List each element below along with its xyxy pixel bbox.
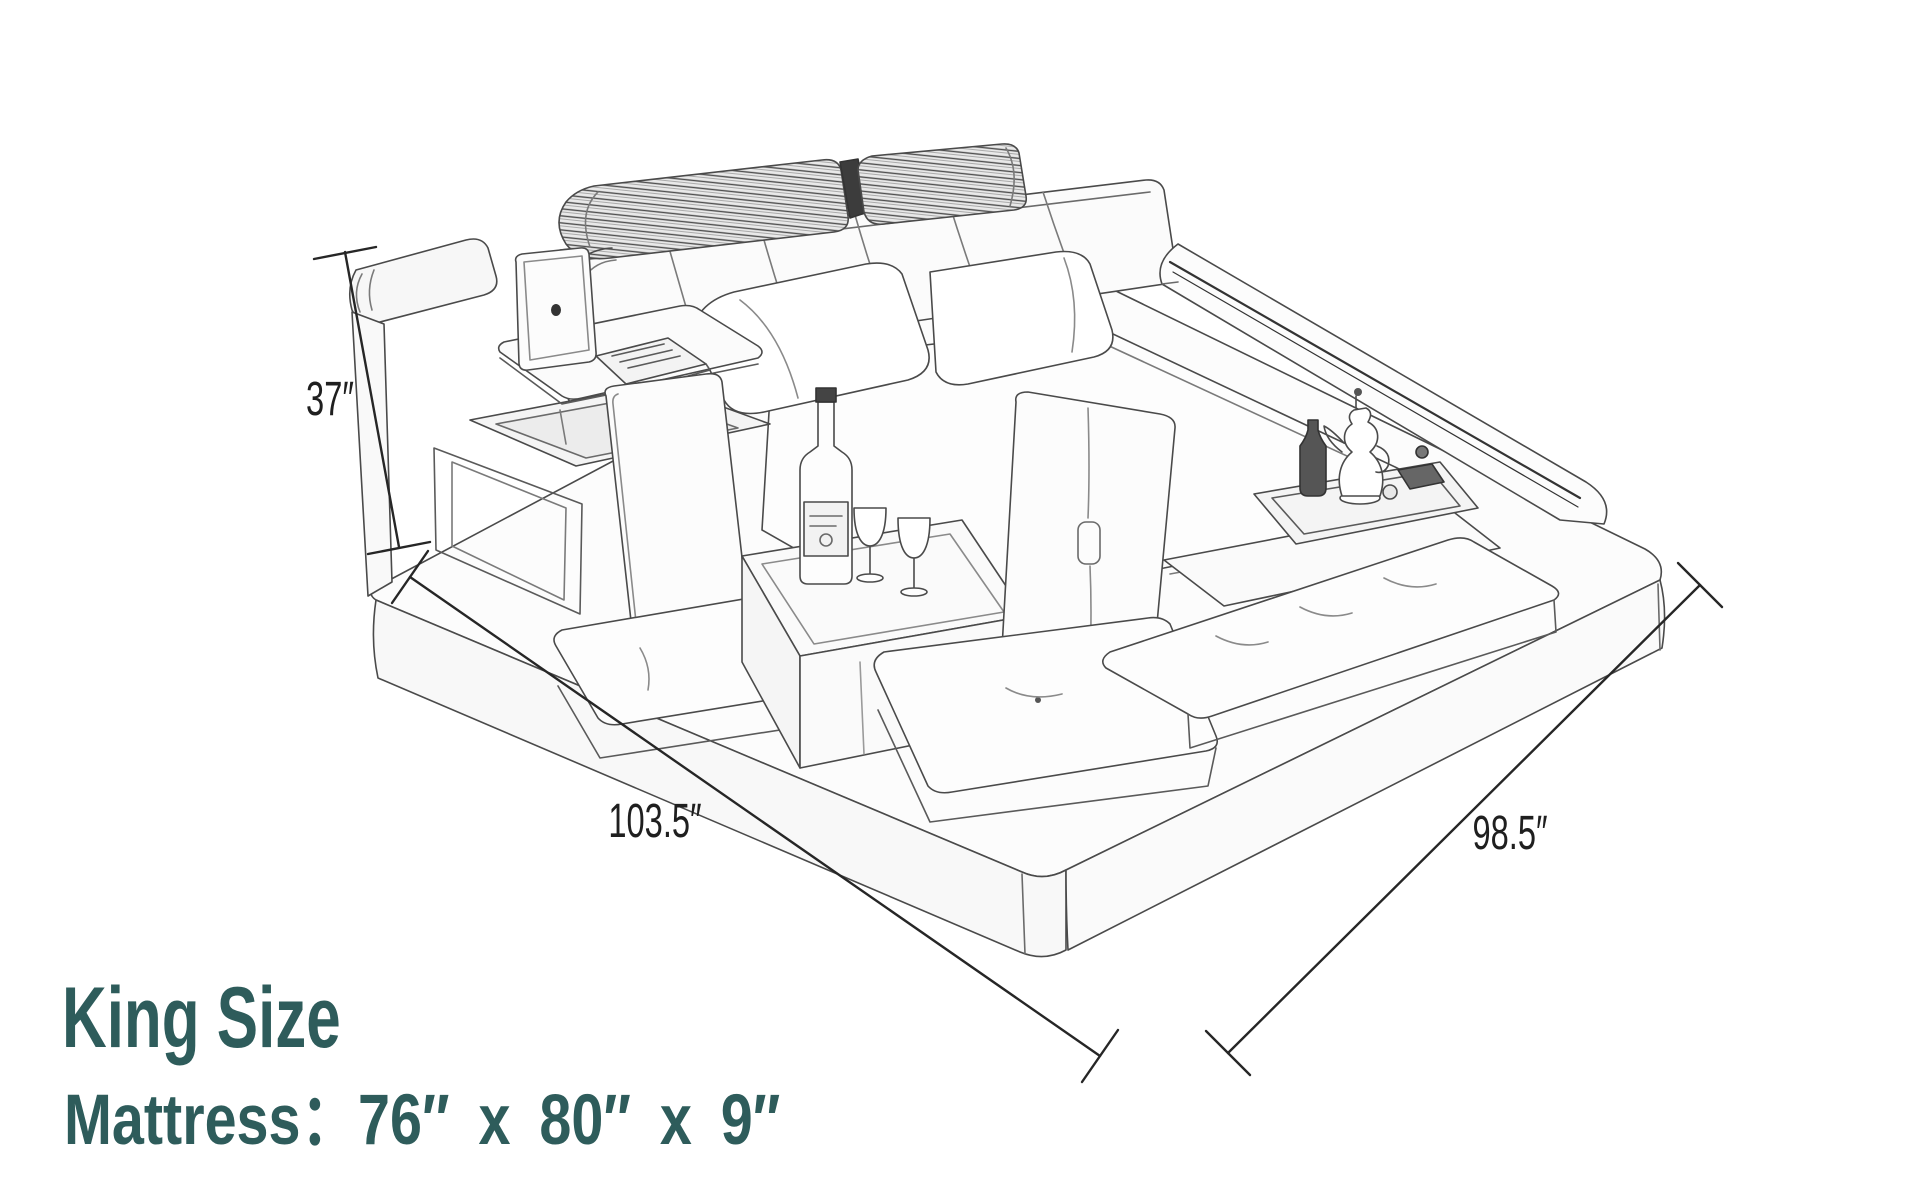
tick-mark (1082, 1030, 1118, 1082)
coffee-cup (1383, 485, 1397, 499)
length-dimension-label: 103.5″ (580, 794, 730, 849)
size-title: King Size (62, 975, 341, 1061)
height-dimension-label: 37″ (276, 372, 385, 427)
dimension-diagram: 37″ 103.5″ 98.5″ King Size Mattress：76″ … (0, 0, 1920, 1200)
laptop-logo-icon (551, 304, 561, 316)
mattress-spec: Mattress：76″ x 80″ x 9″ (64, 1085, 780, 1156)
coffee-cup (1416, 446, 1428, 458)
width-dimension-label: 98.5″ (1435, 806, 1585, 861)
